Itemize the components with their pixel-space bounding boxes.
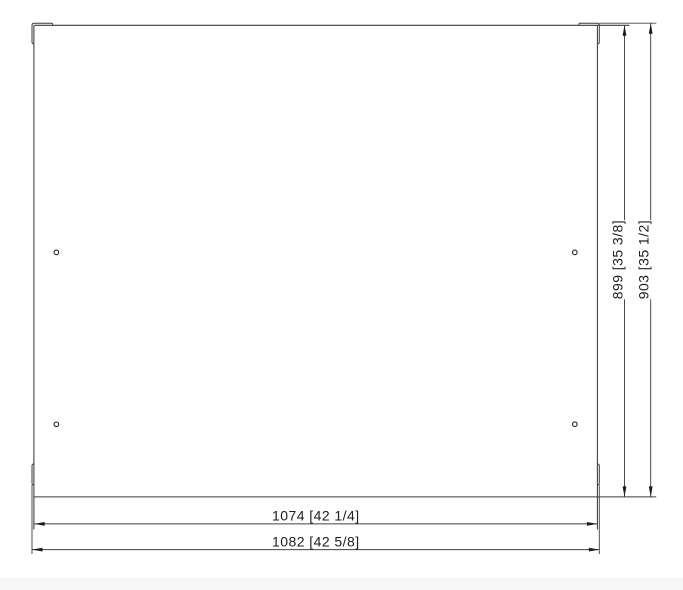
svg-text:899 [35 3/8]: 899 [35 3/8] [609, 220, 625, 299]
svg-text:1074 [42 1/4]: 1074 [42 1/4] [272, 507, 360, 523]
svg-text:903 [35 1/2]: 903 [35 1/2] [635, 220, 651, 299]
svg-text:1082 [42 5/8]: 1082 [42 5/8] [272, 533, 360, 549]
